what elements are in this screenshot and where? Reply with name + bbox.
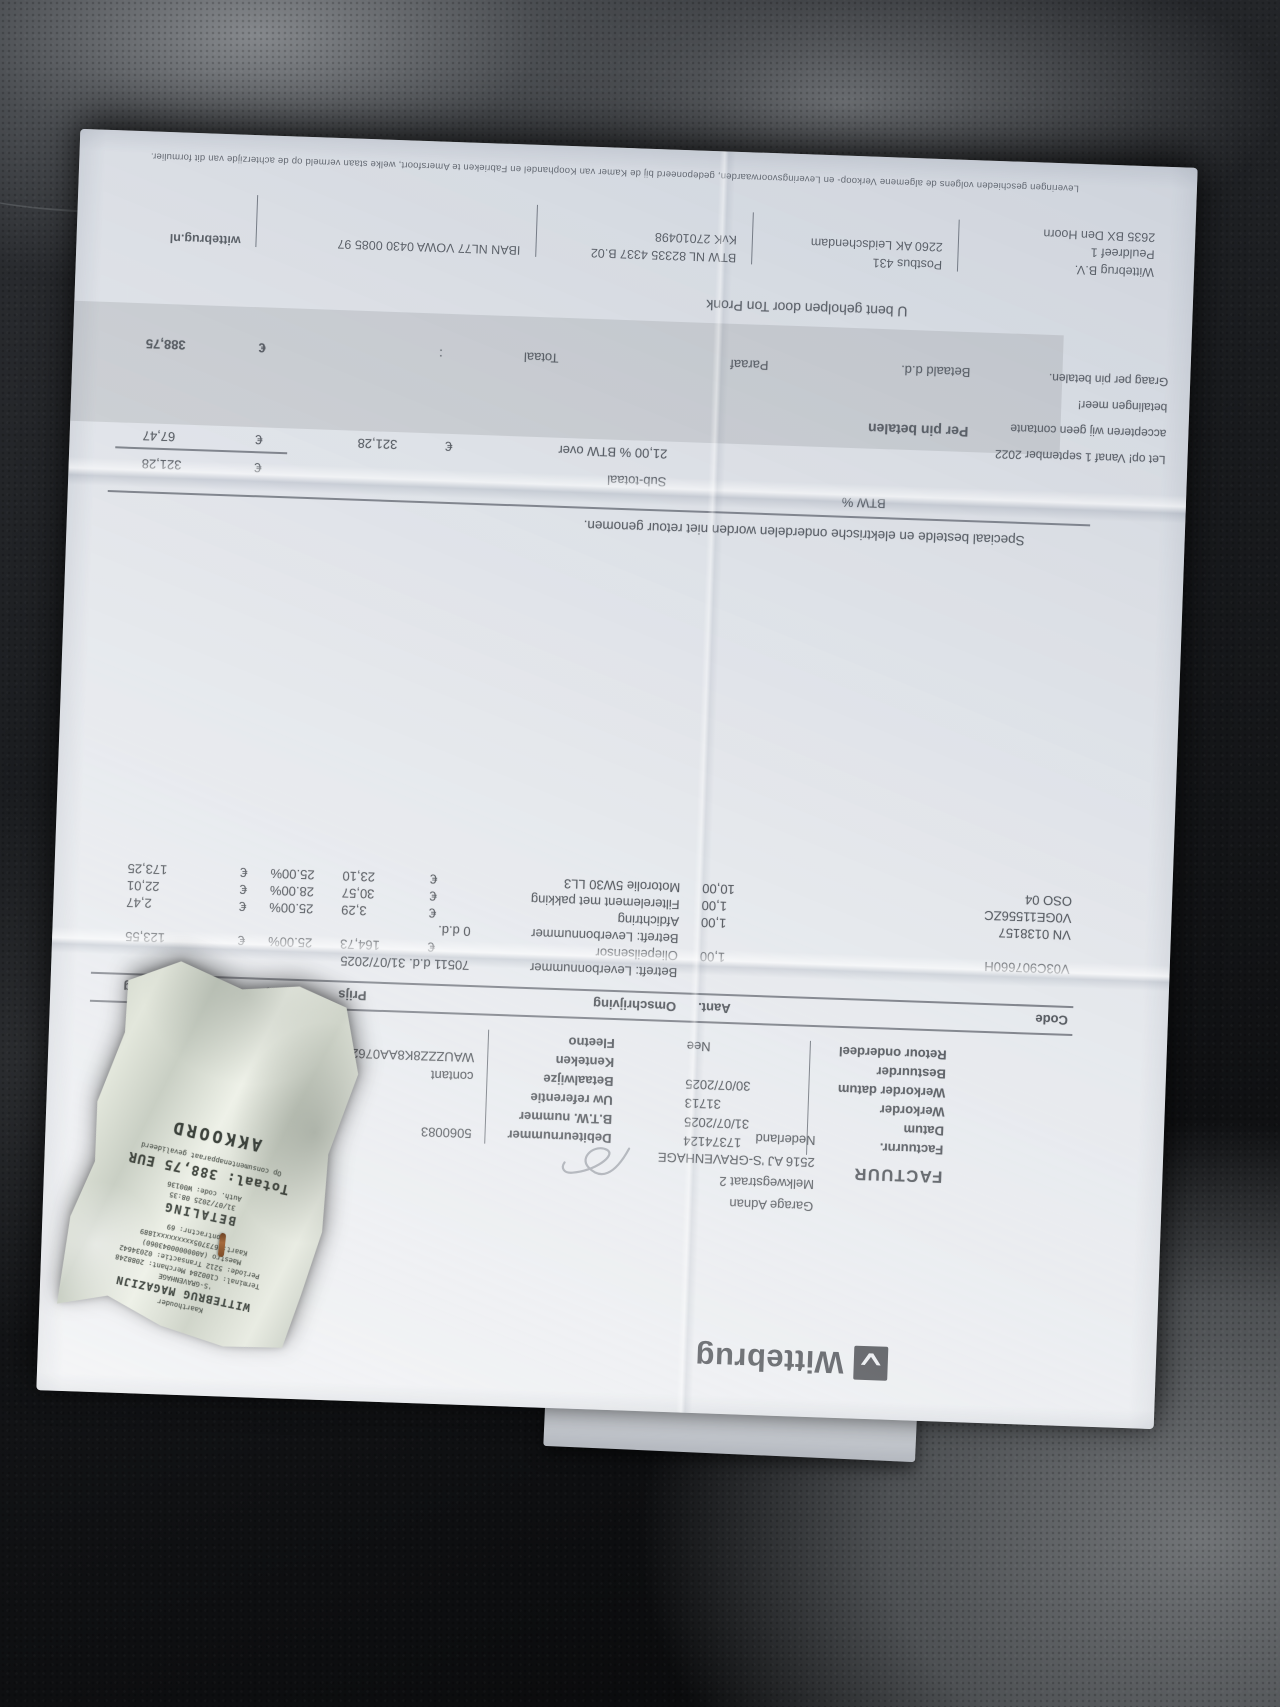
no-return-note: Speciaal bestelde en elektrische onderde… bbox=[583, 518, 1025, 548]
field-label-werkorder-datum: Werkorder datum bbox=[838, 1082, 946, 1101]
footer-divider bbox=[751, 212, 754, 264]
row-qty: 1,00 bbox=[701, 915, 783, 933]
row-desc: Oliepeilsensor bbox=[595, 945, 678, 963]
col-header-code: Code bbox=[1035, 1012, 1068, 1028]
total-label: Totaal bbox=[524, 350, 559, 366]
field-label-kenteken: Kenteken bbox=[555, 1053, 614, 1070]
row-discount: 25.00% bbox=[268, 934, 332, 951]
btw-line-label: 21,00 % BTW over bbox=[558, 443, 668, 462]
field-value-werkorder-datum: 30/07/2025 bbox=[685, 1077, 797, 1096]
field-label-factuurnr: Factuurnr. bbox=[879, 1140, 943, 1157]
row-price: 30,57 bbox=[342, 885, 414, 903]
pen-scribble bbox=[554, 1134, 636, 1189]
row-code: V0GE11556ZC bbox=[984, 908, 1072, 926]
footer-iban: IBAN NL77 VOWA 0430 0085 97 bbox=[337, 234, 520, 258]
row-ref-value: 70511 d.d. 31/07/2025 bbox=[340, 953, 470, 972]
euro-sign: € bbox=[258, 340, 266, 355]
row-code: OSO 04 bbox=[1025, 892, 1072, 909]
terms-fine-print: Leveringen geschieden volgens de algemen… bbox=[119, 149, 1079, 193]
photo-of-invoice-on-car-seat: Wittebrug Garage Adnan Melkwegstraat 2 2… bbox=[0, 0, 1280, 1707]
col-header-aant: Aant. bbox=[698, 1000, 780, 1018]
row-price: 3,29 bbox=[341, 902, 413, 920]
row-ref-value: 0 d.d. bbox=[438, 923, 471, 939]
footer-company-name: Wittebrug B.V. bbox=[1042, 259, 1154, 280]
row-ref-label: Betreft: Leverbonnummer bbox=[530, 960, 678, 980]
field-label-uw-referentie: Uw referentie bbox=[530, 1090, 613, 1108]
btw-amount-value: 67,47 bbox=[142, 428, 225, 446]
footer-divider bbox=[535, 205, 538, 257]
euro-sign: € bbox=[430, 872, 438, 887]
row-code: V03C907660H bbox=[984, 959, 1070, 977]
row-amount: 2,47 bbox=[126, 895, 209, 913]
footer-website-url: wittebrug.nl bbox=[169, 229, 240, 249]
wittebrug-logo-icon bbox=[853, 1346, 888, 1381]
fields-divider-right bbox=[484, 1030, 489, 1144]
euro-sign: € bbox=[254, 460, 262, 475]
subtotal-value: 321,28 bbox=[141, 456, 224, 474]
row-desc: Afdichtring bbox=[617, 912, 679, 929]
subtotal-underline bbox=[115, 447, 287, 455]
row-qty: 1,00 bbox=[700, 949, 782, 967]
paid-date-label: Betaald d.d. bbox=[901, 363, 971, 380]
euro-sign: € bbox=[445, 439, 453, 454]
row-qty: 10,00 bbox=[702, 881, 784, 899]
helped-by-line: U bent geholpen door Ton Pronk bbox=[706, 297, 908, 320]
cash-warning-note: Let op! Vanaf 1 september 2022 acceptere… bbox=[960, 362, 1169, 473]
row-qty: 1,00 bbox=[701, 898, 783, 916]
row-code: VN 0138157 bbox=[998, 925, 1071, 943]
footer-btw-kvk: BTW NL 82335 4337 B.02 KvK 27010498 bbox=[591, 226, 738, 266]
field-label-bestuurder: Bestuurder bbox=[876, 1064, 946, 1081]
btw-column-label: BTW % bbox=[841, 495, 886, 512]
field-label-datum: Datum bbox=[903, 1122, 944, 1138]
euro-sign: € bbox=[428, 940, 436, 955]
field-label-betaalwijze: Betaalwijze bbox=[543, 1072, 614, 1089]
euro-sign: € bbox=[238, 933, 246, 948]
row-price: 164,73 bbox=[340, 936, 412, 954]
field-label-btw-nummer: B.T.W. nummer bbox=[519, 1109, 613, 1127]
wittebrug-logo: Wittebrug bbox=[694, 1339, 888, 1382]
euro-sign: € bbox=[239, 882, 247, 897]
paraaf-label: Paraaf bbox=[730, 357, 769, 373]
subtotal-label: Sub-totaal bbox=[607, 472, 667, 489]
total-value: 388,75 bbox=[146, 336, 233, 354]
wittebrug-logo-text: Wittebrug bbox=[694, 1339, 844, 1380]
euro-sign: € bbox=[429, 906, 437, 921]
btw-base-value: 321,28 bbox=[357, 436, 429, 454]
footer-divider bbox=[255, 195, 258, 247]
euro-sign: € bbox=[429, 889, 437, 904]
footer-divider bbox=[957, 220, 960, 272]
field-value-betaalwijze: contant bbox=[431, 1068, 474, 1084]
row-amount: 22,01 bbox=[127, 878, 210, 896]
field-value-werkorder: 31713 bbox=[684, 1096, 796, 1115]
euro-sign: € bbox=[239, 899, 247, 914]
col-header-omschrijving: Omschrijving bbox=[593, 996, 677, 1014]
row-discount: 25.00% bbox=[270, 866, 334, 883]
footer-iban-number: IBAN NL77 VOWA 0430 0085 97 bbox=[337, 234, 520, 258]
footer-company-address: Wittebrug B.V. Peuldreef 1 2635 BX Den H… bbox=[1042, 224, 1156, 280]
total-colon: : bbox=[439, 347, 443, 362]
row-discount: 28.00% bbox=[270, 883, 334, 900]
field-label-retour-onderdeel: Retour onderdeel bbox=[839, 1044, 947, 1063]
euro-sign: € bbox=[240, 865, 248, 880]
field-label-fleetno: Fleetno bbox=[568, 1034, 615, 1051]
row-amount: 173,25 bbox=[127, 861, 210, 879]
field-value-retour-onderdeel: Nee bbox=[686, 1039, 798, 1058]
euro-sign: € bbox=[255, 432, 263, 447]
footer-website: wittebrug.nl bbox=[169, 229, 240, 249]
field-value-debiteurnummer: 5060083 bbox=[421, 1124, 472, 1141]
footer-postbus: Postbus 431 2260 AK Leidschendam bbox=[810, 233, 943, 273]
field-label-werkorder: Werkorder bbox=[880, 1102, 945, 1119]
row-amount: 123,55 bbox=[125, 929, 208, 947]
row-price: 23,10 bbox=[342, 868, 414, 886]
field-value-bestuurder bbox=[686, 1073, 798, 1077]
row-discount: 25.00% bbox=[269, 900, 333, 917]
page-title: FACTUUR bbox=[853, 1163, 943, 1185]
